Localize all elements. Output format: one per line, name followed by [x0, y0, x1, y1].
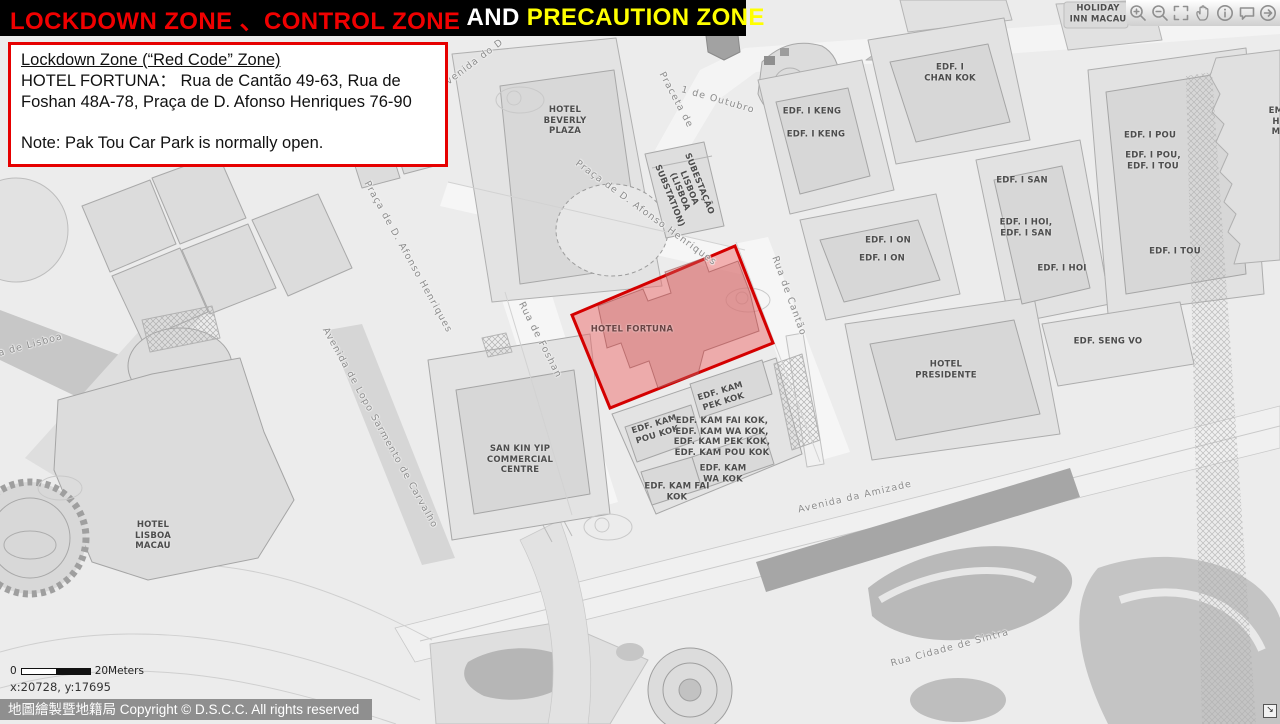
- map-application: HOTELBEVERLYPLAZASUBESTAÇÃOLISBOA(LISBOA…: [0, 0, 1280, 724]
- zoom-out-icon[interactable]: [1150, 3, 1170, 23]
- arrow-icon[interactable]: [1258, 3, 1278, 23]
- title-segment: AND: [460, 4, 526, 32]
- scale-bar-graphic: [21, 668, 91, 675]
- title-segment: LOCKDOWN ZONE 、CONTROL ZONE: [10, 1, 460, 36]
- copyright-bar: 地圖繪製暨地籍局 Copyright © D.S.C.C. All rights…: [0, 699, 372, 720]
- info-body: HOTEL FORTUNA： Rua de Cantão 49-63, Rua …: [21, 71, 435, 113]
- comment-icon[interactable]: [1237, 3, 1257, 23]
- info-icon[interactable]: [1215, 3, 1235, 23]
- title-bar: LOCKDOWN ZONE 、CONTROL ZONE AND PRECAUTI…: [0, 0, 746, 36]
- map-toolbar: [1126, 0, 1280, 26]
- scale-zero: 0: [10, 665, 17, 677]
- pan-icon[interactable]: [1193, 3, 1213, 23]
- coordinates-readout: x:20728, y:17695: [10, 680, 111, 694]
- scale-distance-label: 20Meters: [95, 665, 144, 677]
- info-heading: Lockdown Zone (“Red Code” Zone): [21, 50, 435, 71]
- zoom-in-icon[interactable]: [1128, 3, 1148, 23]
- lockdown-info-box: Lockdown Zone (“Red Code” Zone) HOTEL FO…: [8, 42, 448, 167]
- title-segment: PRECAUTION ZONE: [527, 4, 765, 32]
- fullscreen-icon[interactable]: [1171, 3, 1191, 23]
- scale-bar: 0 20Meters: [10, 665, 144, 677]
- resize-handle-icon[interactable]: ↘: [1263, 704, 1277, 718]
- info-note: Note: Pak Tou Car Park is normally open.: [21, 133, 435, 154]
